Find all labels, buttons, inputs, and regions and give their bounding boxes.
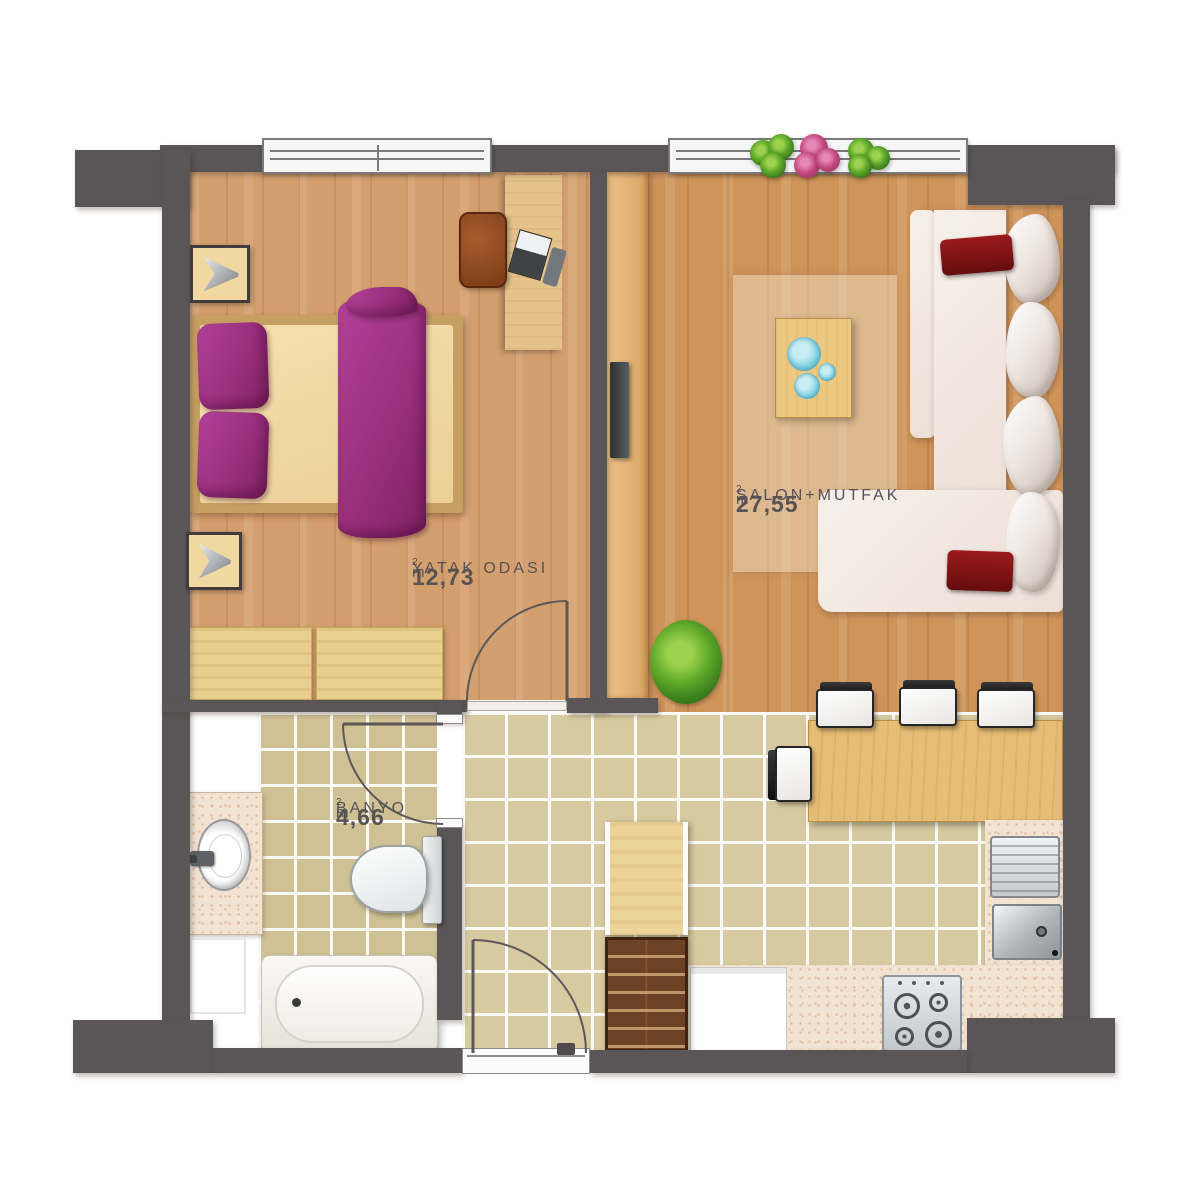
window-plants (750, 134, 895, 180)
chair-seat (816, 689, 874, 728)
bathtub-drain (292, 998, 301, 1007)
wall-bedroom-bottom (162, 700, 467, 712)
stove-knob (940, 981, 944, 985)
chair-seat (775, 746, 812, 802)
wall-bedroom-salon-divider (590, 172, 607, 712)
sink-drain (1036, 926, 1047, 937)
wall-divider-foot (567, 698, 658, 713)
drainboard (990, 836, 1060, 898)
chair-seat (899, 687, 957, 726)
washing-machine (190, 938, 246, 1014)
door-jamb (436, 818, 463, 828)
tv (610, 362, 629, 458)
appliance (690, 967, 787, 1052)
floor-plant (650, 620, 722, 704)
wall-bottom-bath (213, 1048, 462, 1073)
dresser (188, 627, 312, 700)
door-jamb (436, 714, 463, 724)
bedroom-door-threshold (467, 701, 567, 711)
shoe-cabinet (605, 937, 688, 1052)
bedroom-window (262, 138, 492, 174)
stove-burner (894, 993, 920, 1019)
bed-pillow (197, 322, 270, 410)
wall-bottom-right-pier (967, 1018, 1115, 1073)
decor-bowl (794, 373, 820, 399)
stove-burner (925, 1021, 952, 1048)
bed-blanket (338, 298, 426, 538)
threshold-rail (467, 1055, 585, 1057)
stove-burner (929, 993, 948, 1012)
sofa-back-cushion (1006, 302, 1060, 398)
sofa-red-cushion (946, 550, 1013, 592)
wall-bottom-left (73, 1020, 213, 1073)
dining-chair (977, 682, 1037, 728)
decor-bowl (818, 363, 836, 381)
stove-knob (898, 981, 902, 985)
dresser (316, 627, 443, 700)
window-divider (377, 145, 379, 171)
bed-pillow (197, 411, 270, 499)
bed-blanket-fold (346, 287, 418, 317)
decor-bowl (787, 337, 821, 371)
floor-plan: YATAK ODASI 12,73 m2 SALON+MUTFAK 27,55 … (0, 0, 1200, 1200)
desk-chair (459, 212, 507, 288)
dining-table (808, 720, 1063, 822)
sofa-armrest (910, 210, 936, 438)
dining-chair (899, 680, 959, 726)
lamp-icon (198, 253, 242, 295)
plant-puff (760, 152, 786, 178)
stove-knob (912, 981, 916, 985)
toilet-bowl (350, 845, 428, 913)
stove (882, 975, 962, 1052)
sink-corner-dot (1052, 950, 1058, 956)
lamp-icon (194, 540, 234, 582)
area-unit-sup: 2 (736, 484, 743, 495)
sofa-red-cushion (940, 234, 1015, 276)
bathtub (262, 956, 437, 1052)
wall-top-right-pier (968, 147, 1115, 205)
threshold-latch (557, 1043, 575, 1055)
stove-knob (926, 981, 930, 985)
sofa-back-cushion (1006, 492, 1060, 592)
area-unit-sup: 2 (412, 557, 419, 568)
flower-puff (816, 148, 840, 172)
wall-lamp (190, 245, 250, 303)
sofa-back-cushion (1003, 396, 1061, 496)
wall-right (1063, 200, 1090, 1020)
area-unit-sup: 2 (336, 797, 343, 808)
hall-cabinet (605, 822, 688, 935)
plant-puff (848, 154, 872, 178)
wall-bottom-mid (590, 1050, 967, 1073)
kitchen-sink (992, 904, 1062, 960)
wall-lamp (186, 532, 242, 590)
stove-burner (895, 1027, 914, 1046)
entrance-threshold (462, 1048, 590, 1074)
dining-chair (816, 682, 876, 728)
dining-chair (768, 746, 812, 804)
chair-seat (977, 689, 1035, 728)
